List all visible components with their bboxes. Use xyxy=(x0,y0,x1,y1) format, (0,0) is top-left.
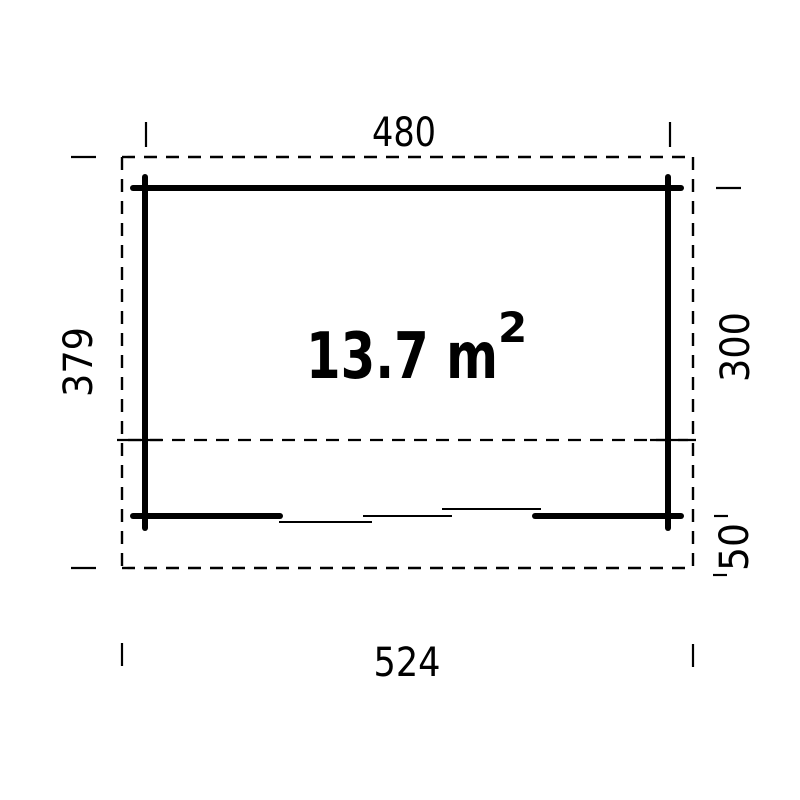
door-opening xyxy=(279,509,541,522)
dim-label-right-overhang: 50 xyxy=(712,523,758,571)
dim-label-bottom-width: 524 xyxy=(374,640,441,686)
area-label-group: 13.7 m2 xyxy=(306,303,527,394)
dimension-ticks xyxy=(71,122,741,667)
dim-label-left-depth: 379 xyxy=(56,327,102,397)
area-value: 13.7 m xyxy=(306,320,498,394)
dim-label-right-depth: 300 xyxy=(713,312,759,382)
area-superscript: 2 xyxy=(498,303,527,352)
area-label: 13.7 m2 xyxy=(306,303,527,394)
floor-plan-canvas: 480 524 379 300 50 13.7 m2 xyxy=(0,0,800,800)
dim-label-top-width: 480 xyxy=(372,110,436,156)
floor-plan-drawing: 480 524 379 300 50 13.7 m2 xyxy=(0,0,800,800)
dimension-labels: 480 524 379 300 50 xyxy=(56,110,759,686)
